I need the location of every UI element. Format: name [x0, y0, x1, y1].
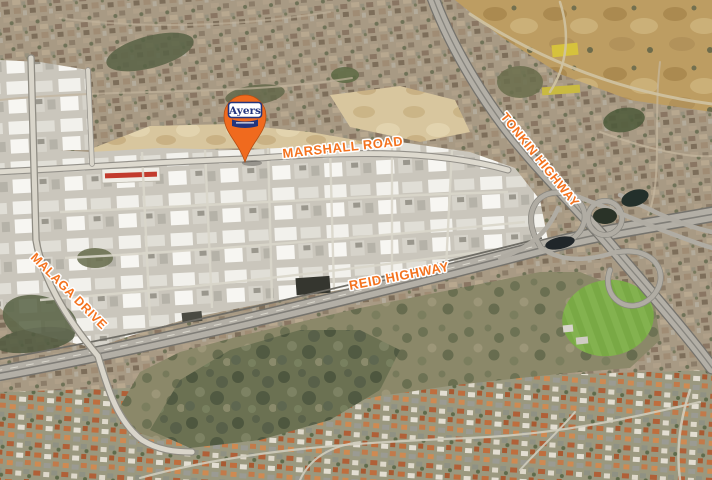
dark-roof-building [295, 276, 330, 295]
pin-label: Ayers [228, 105, 261, 117]
aerial-map-canvas: MARSHALL ROAD TONKIN HIGHWAY REID HIGHWA… [0, 0, 712, 480]
pin-banner-text-line [236, 122, 254, 123]
aerial-map: MARSHALL ROAD TONKIN HIGHWAY REID HIGHWA… [0, 0, 712, 480]
red-stripe-building [102, 167, 160, 183]
